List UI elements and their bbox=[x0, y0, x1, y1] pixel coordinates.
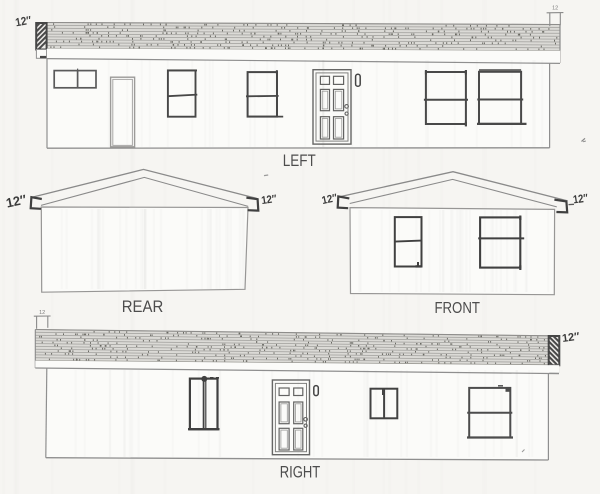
svg-text:12″: 12″ bbox=[261, 193, 279, 207]
svg-text:REAR: REAR bbox=[122, 297, 164, 316]
svg-text:RIGHT: RIGHT bbox=[280, 464, 321, 482]
svg-text:LEFT: LEFT bbox=[283, 152, 316, 170]
svg-text:FRONT: FRONT bbox=[434, 300, 480, 317]
svg-text:12″: 12″ bbox=[561, 331, 581, 345]
svg-text:12″: 12″ bbox=[572, 192, 589, 206]
svg-text:12: 12 bbox=[552, 6, 558, 12]
svg-text:12: 12 bbox=[39, 310, 45, 316]
